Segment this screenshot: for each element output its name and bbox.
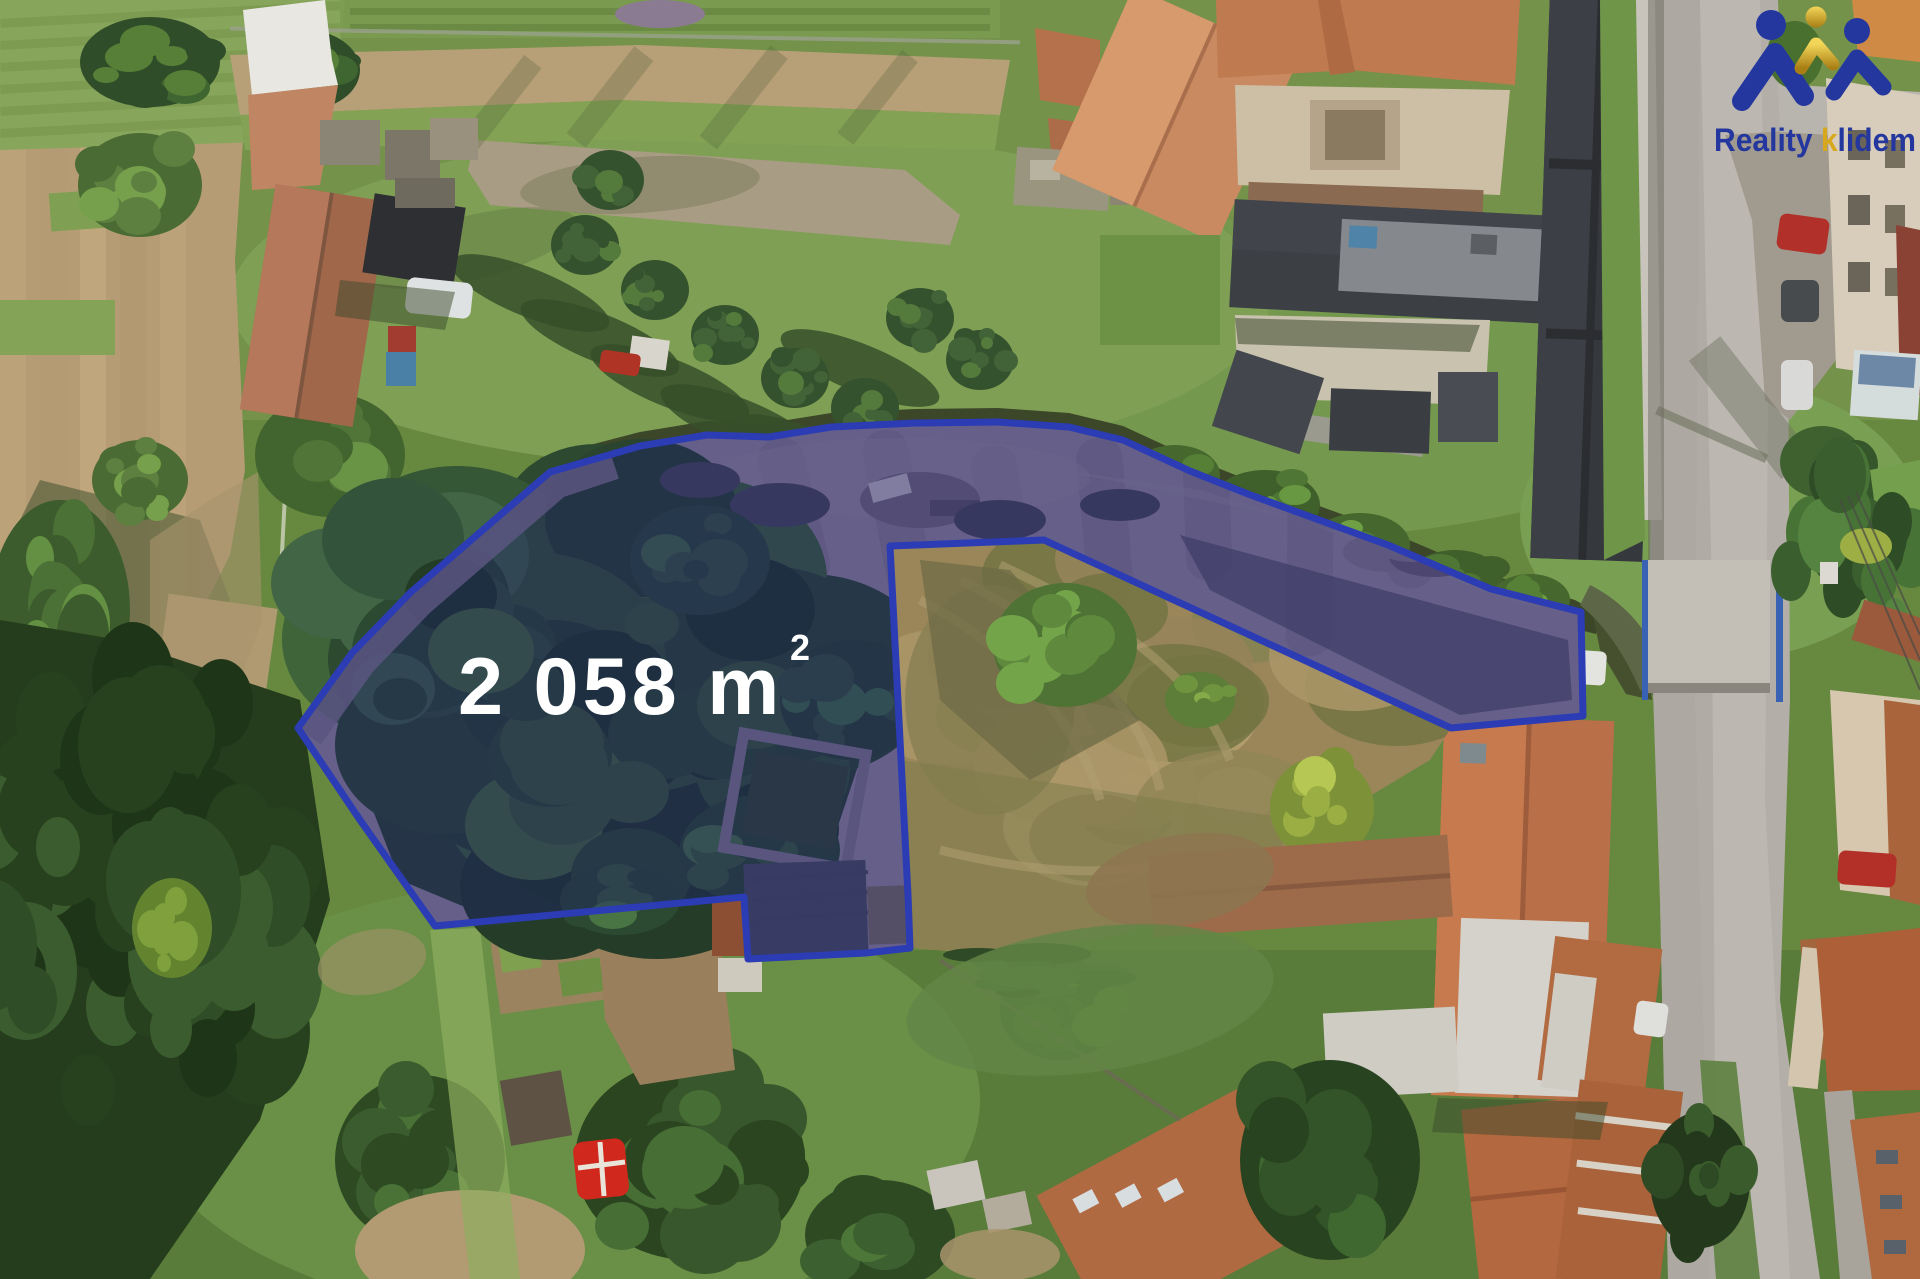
svg-text:Reality klidem: Reality klidem — [1714, 122, 1916, 158]
svg-text:2 058 m: 2 058 m — [458, 642, 783, 732]
svg-text:2: 2 — [790, 627, 810, 668]
